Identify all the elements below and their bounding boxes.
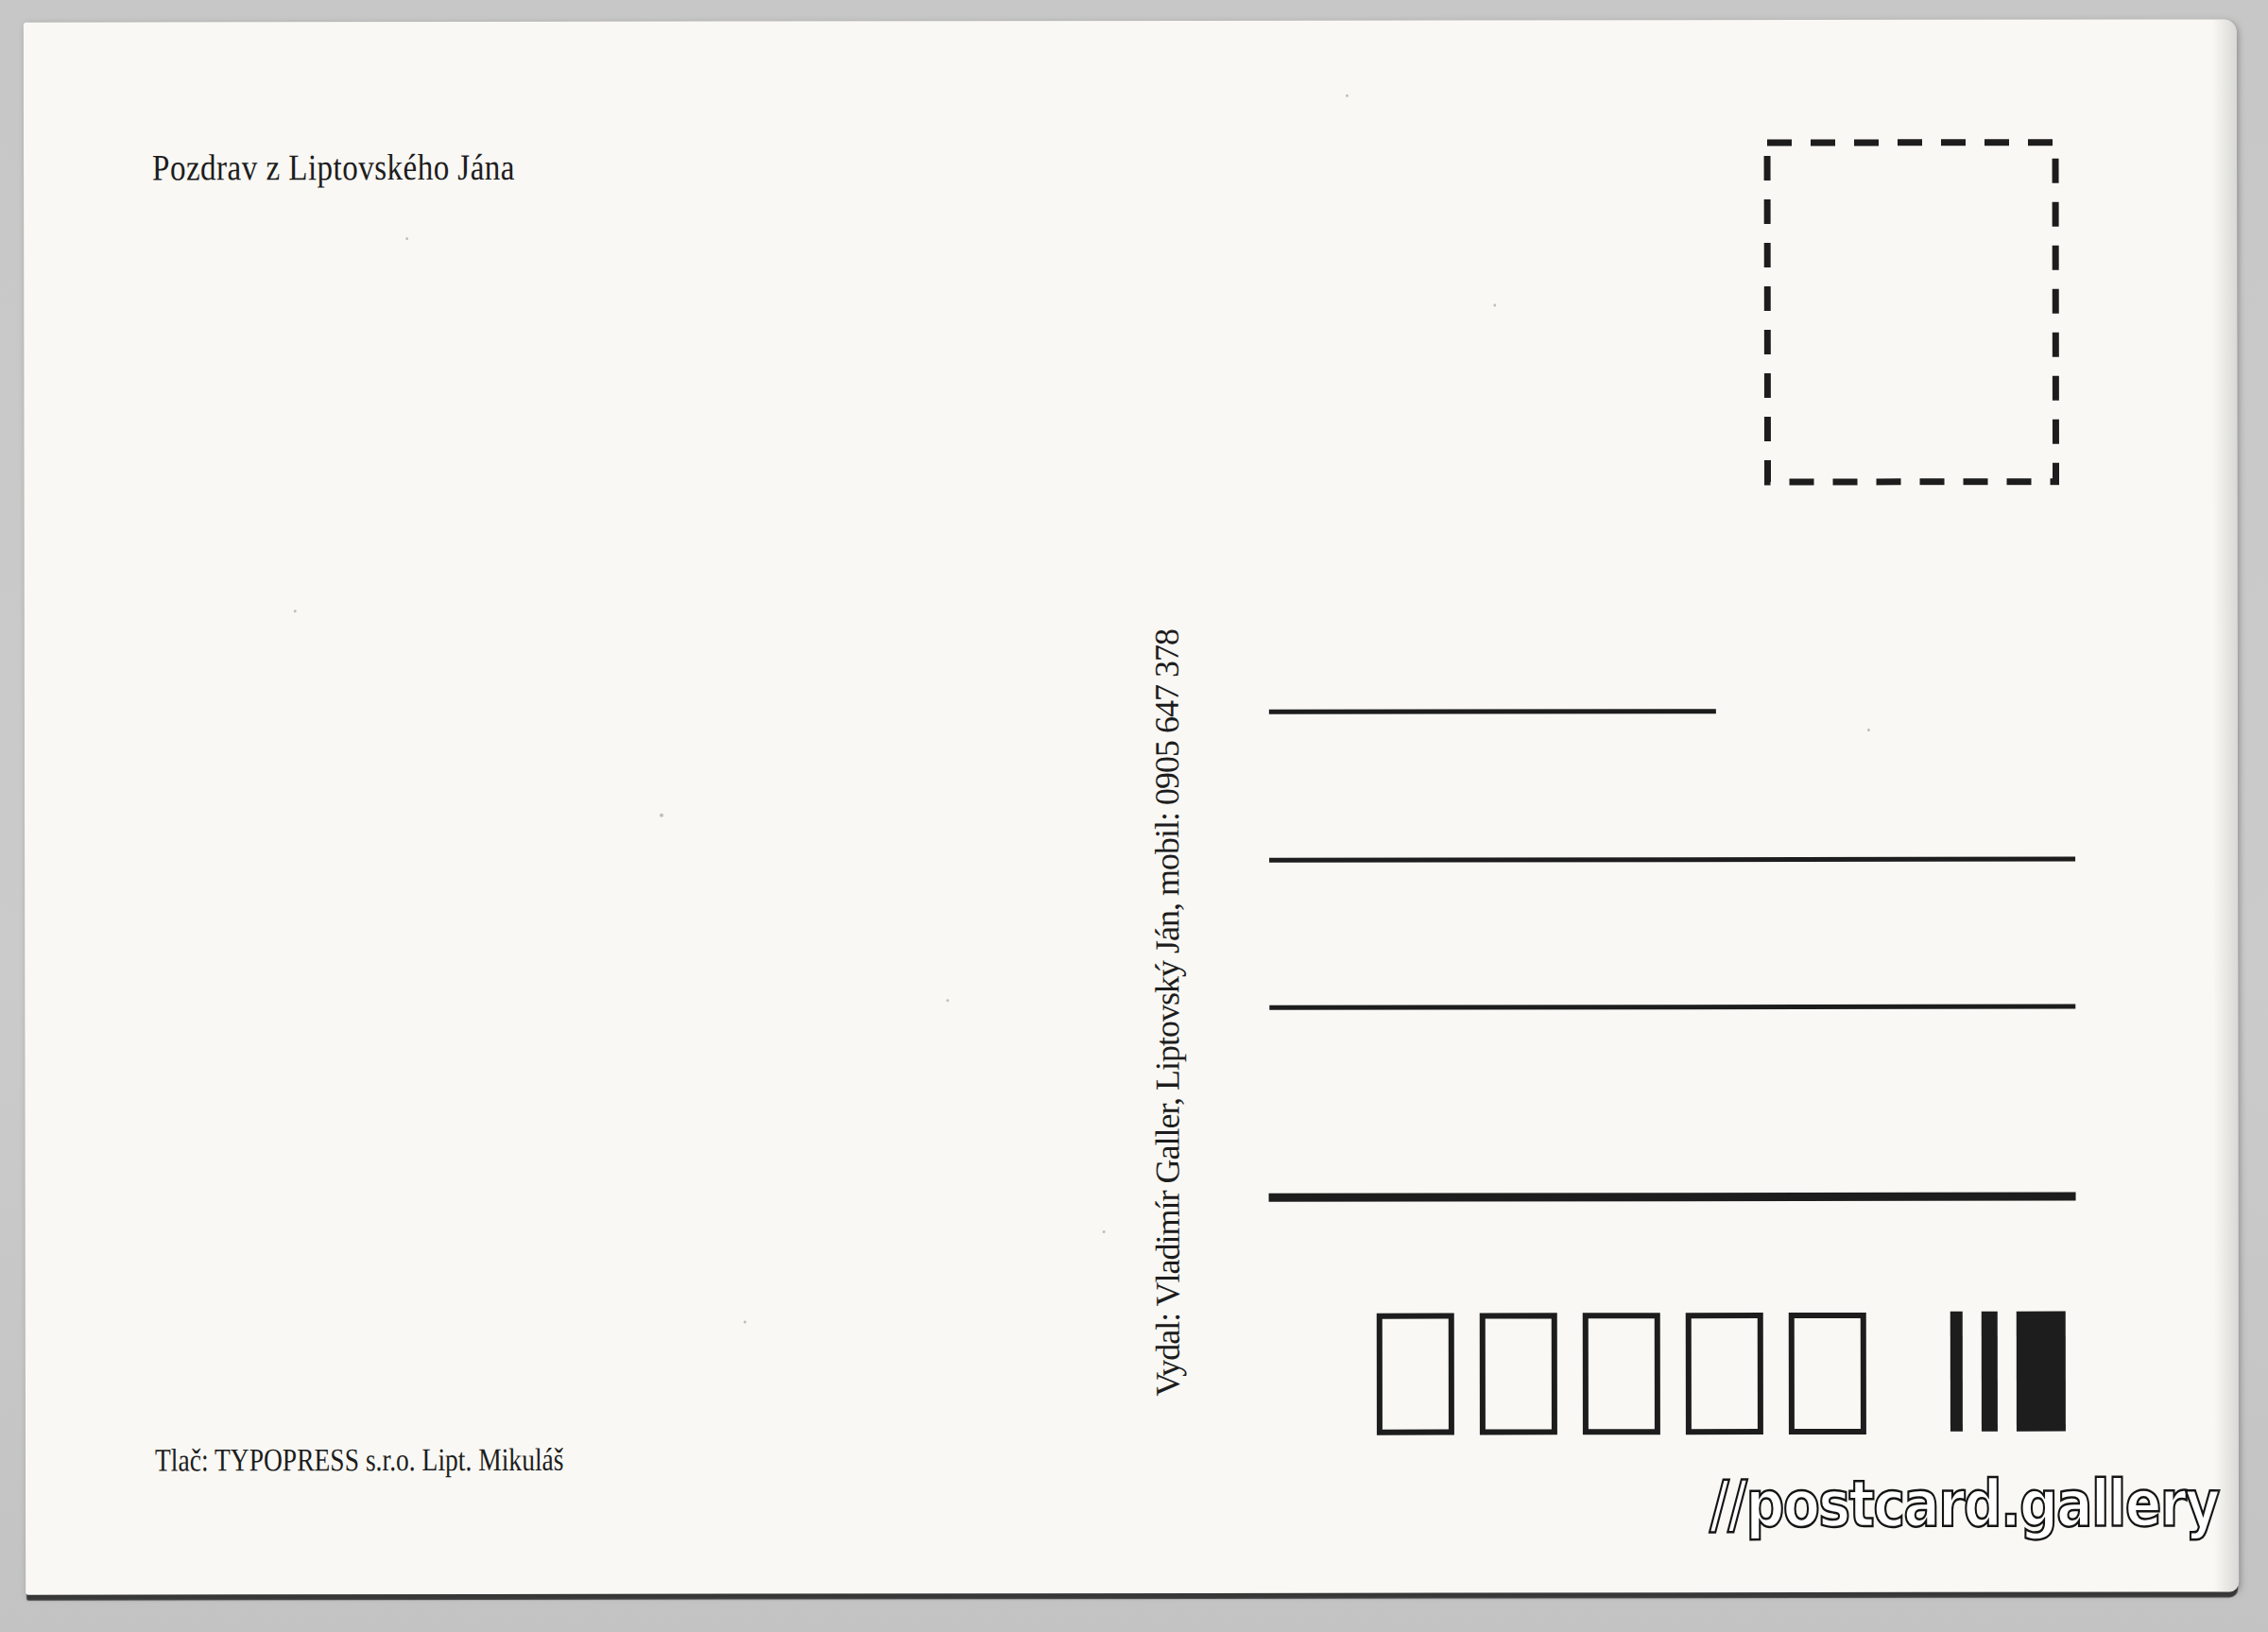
dust-speck	[1103, 1230, 1106, 1233]
postcard-back: Pozdrav z Liptovského Jána Vydal: Vladim…	[24, 19, 2239, 1594]
greeting-text: Pozdrav z Liptovského Jána	[152, 146, 515, 190]
dust-speck	[294, 610, 297, 612]
printer-text: Tlač: TYPOPRESS s.r.o. Lipt. Mikuláš	[155, 1440, 564, 1481]
address-line	[1269, 709, 1716, 714]
sorting-bars	[1950, 1312, 2066, 1432]
address-line	[1269, 1005, 2075, 1010]
dust-speck	[660, 814, 663, 817]
stamp-box-dashed-border	[1767, 143, 2056, 482]
dust-speck	[405, 237, 408, 240]
postcard-right-edge	[2212, 19, 2239, 1591]
postal-code-box	[1480, 1313, 1557, 1434]
sorting-bar	[1982, 1312, 1998, 1432]
postal-code-box	[1686, 1313, 1763, 1434]
postal-code-box	[1789, 1313, 1866, 1434]
watermark-text: //postcard.gallery	[1710, 1452, 2219, 1556]
dust-speck	[1493, 303, 1496, 306]
address-line	[1269, 857, 2075, 863]
address-line-thick	[1269, 1193, 2076, 1202]
dust-speck	[1346, 94, 1349, 97]
stamp-box	[1763, 139, 2060, 486]
sorting-bar-thick	[2017, 1312, 2066, 1432]
publisher-vertical-text: Vydal: Vladimír Galler, Liptovský Ján, m…	[1145, 545, 1190, 1481]
scan-background: { "postcard": { "greeting": "Pozdrav z L…	[0, 0, 2268, 1632]
dust-speck	[744, 1321, 747, 1324]
postal-code-box	[1583, 1313, 1660, 1434]
postal-code-boxes	[1377, 1313, 1866, 1435]
postal-code-box	[1377, 1314, 1454, 1435]
dust-speck	[1867, 729, 1870, 731]
sorting-bar	[1950, 1312, 1963, 1432]
dust-speck	[946, 999, 949, 1002]
